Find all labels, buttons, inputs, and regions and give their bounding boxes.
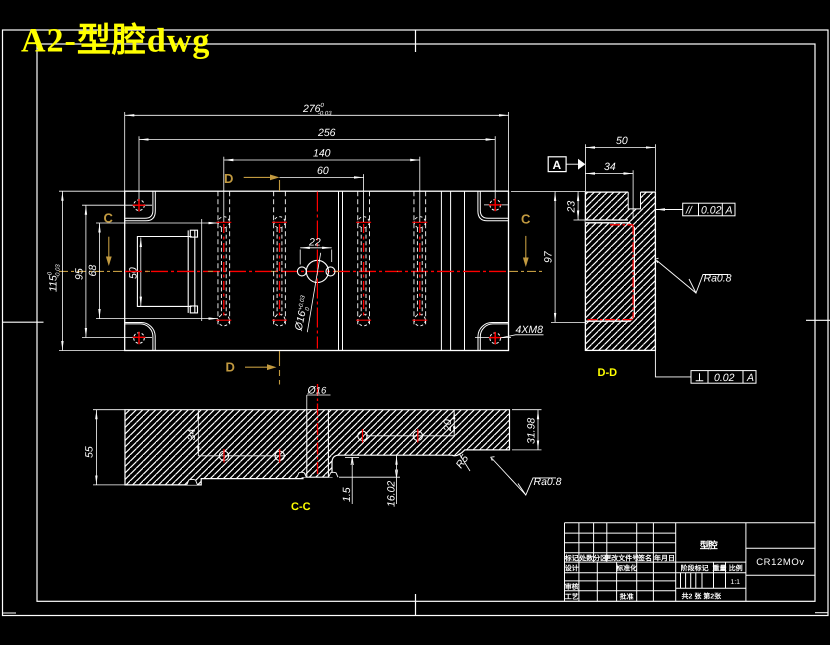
- svg-text:C: C: [521, 212, 531, 227]
- svg-text:A: A: [553, 158, 562, 172]
- svg-text:0.02: 0.02: [714, 372, 735, 384]
- svg-text:更改文件号: 更改文件号: [604, 553, 639, 562]
- svg-text:23: 23: [566, 201, 578, 214]
- svg-text:20: 20: [442, 419, 454, 432]
- svg-text:97: 97: [543, 250, 555, 263]
- svg-text:CR12MOv: CR12MOv: [756, 557, 805, 568]
- svg-text:16.02: 16.02: [385, 481, 397, 507]
- svg-text:A: A: [725, 205, 733, 217]
- svg-text:D: D: [226, 360, 235, 375]
- svg-text:标准化: 标准化: [615, 563, 637, 572]
- svg-text:阶段标记: 阶段标记: [681, 563, 709, 572]
- svg-text:审核: 审核: [565, 582, 579, 591]
- svg-text:A2-型腔dwg: A2-型腔dwg: [21, 22, 210, 60]
- svg-text:重量: 重量: [713, 563, 727, 572]
- svg-text:1:1: 1:1: [730, 579, 740, 586]
- svg-text:55: 55: [84, 446, 96, 458]
- svg-text:D: D: [224, 171, 233, 186]
- svg-text:C: C: [104, 211, 114, 226]
- svg-text:比例: 比例: [729, 563, 743, 572]
- svg-text:31.98: 31.98: [526, 418, 538, 444]
- svg-text:A: A: [746, 372, 754, 384]
- svg-text:设计: 设计: [565, 563, 579, 572]
- svg-text:C-C: C-C: [291, 501, 311, 513]
- svg-text:Ra0.8: Ra0.8: [534, 476, 562, 488]
- svg-text:0.02: 0.02: [701, 205, 722, 217]
- svg-text:Ra0.8: Ra0.8: [704, 273, 732, 285]
- svg-text:签名: 签名: [637, 553, 652, 562]
- svg-text:D-D: D-D: [598, 367, 618, 379]
- svg-text:年月日: 年月日: [654, 553, 675, 562]
- svg-text:1.5: 1.5: [341, 487, 353, 502]
- svg-text:工艺: 工艺: [565, 592, 579, 601]
- svg-text:型腔: 型腔: [700, 539, 719, 551]
- svg-text:批准: 批准: [620, 592, 634, 601]
- svg-text:68: 68: [87, 265, 99, 277]
- svg-text:共2 张 第2张: 共2 张 第2张: [682, 591, 723, 600]
- svg-text://: //: [685, 205, 693, 217]
- svg-text:22: 22: [308, 237, 321, 249]
- svg-text:60: 60: [317, 165, 329, 177]
- svg-text:Ø16: Ø16: [307, 385, 327, 397]
- svg-text:34: 34: [604, 161, 616, 173]
- svg-text:140: 140: [313, 148, 331, 160]
- svg-text:95: 95: [74, 268, 86, 280]
- svg-text:处数: 处数: [578, 553, 594, 562]
- svg-text:34: 34: [186, 429, 198, 441]
- svg-text:标记: 标记: [564, 553, 579, 562]
- svg-text:50: 50: [616, 135, 628, 147]
- svg-text:256: 256: [317, 127, 336, 139]
- svg-text:4XM8: 4XM8: [516, 324, 544, 336]
- svg-text:50: 50: [128, 267, 140, 279]
